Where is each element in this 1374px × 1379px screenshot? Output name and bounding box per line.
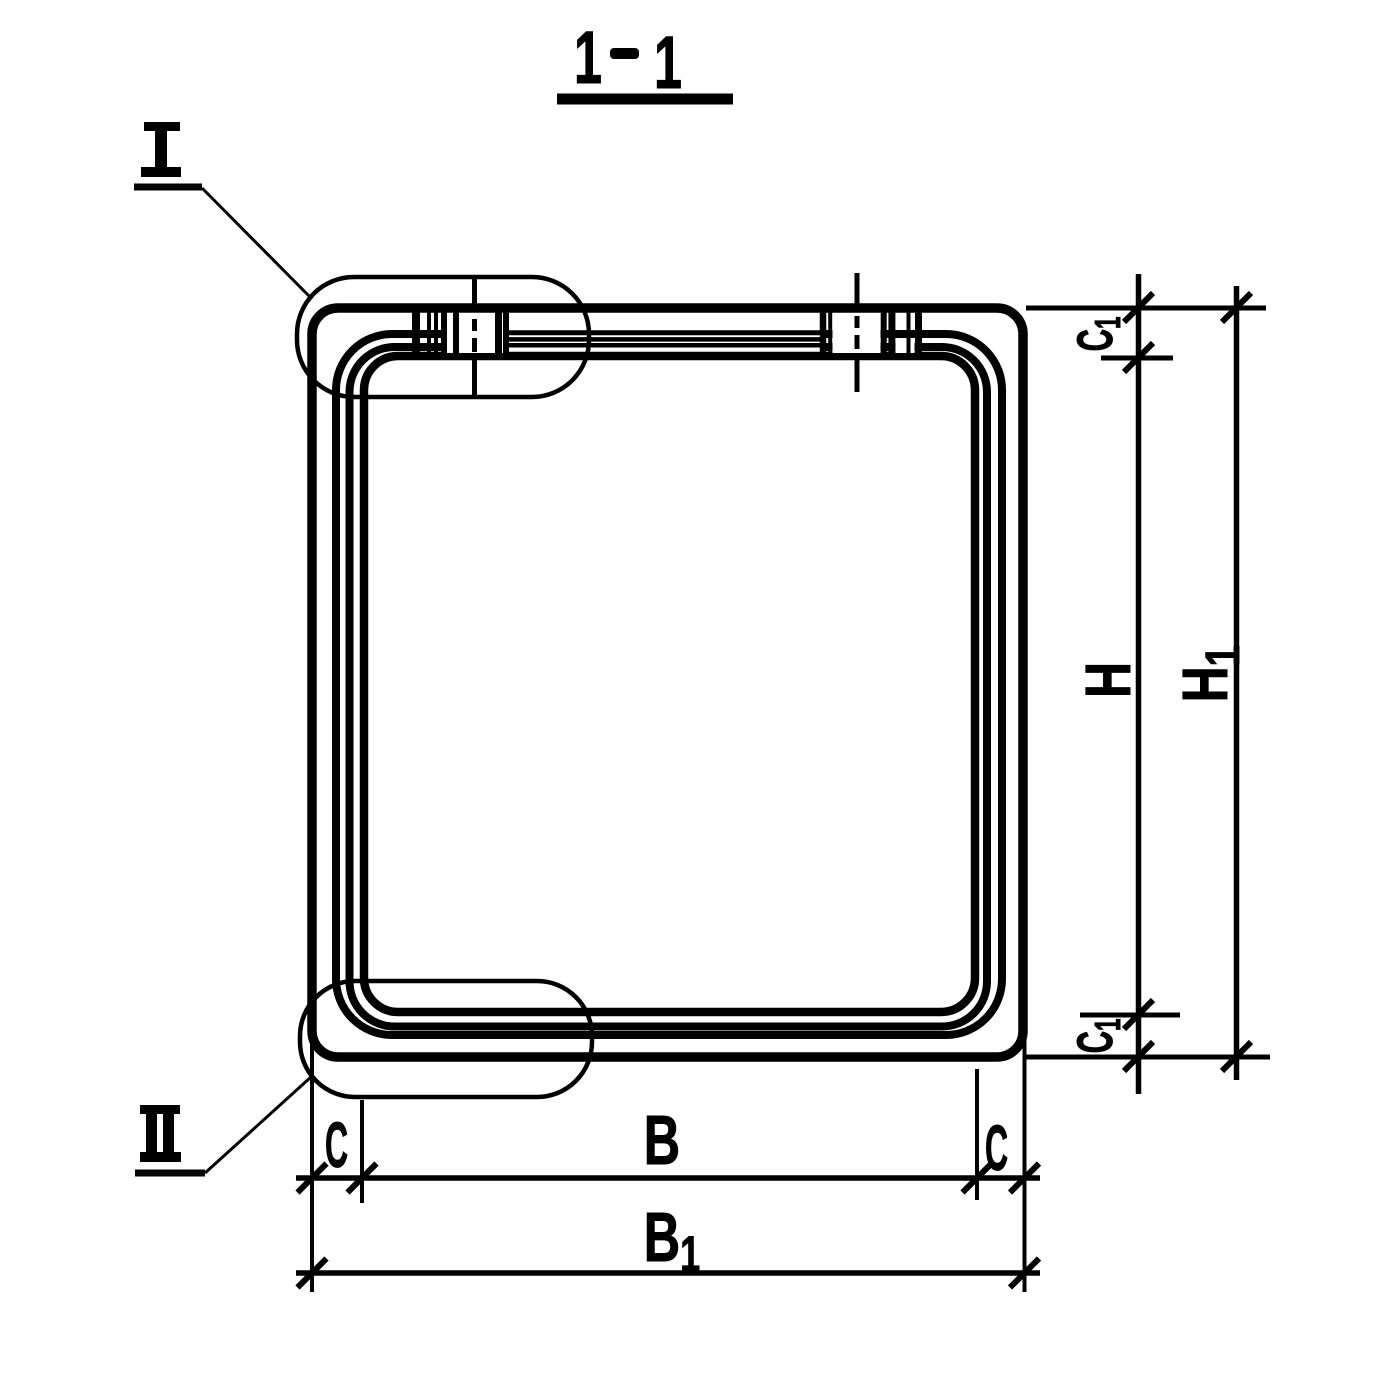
svg-text:C: C — [985, 1112, 1008, 1184]
svg-text:C: C — [325, 1109, 348, 1181]
svg-text:1: 1 — [654, 23, 682, 105]
svg-text:1: 1 — [574, 18, 602, 100]
svg-text:H: H — [1073, 662, 1144, 698]
svg-text:B: B — [644, 1101, 680, 1179]
